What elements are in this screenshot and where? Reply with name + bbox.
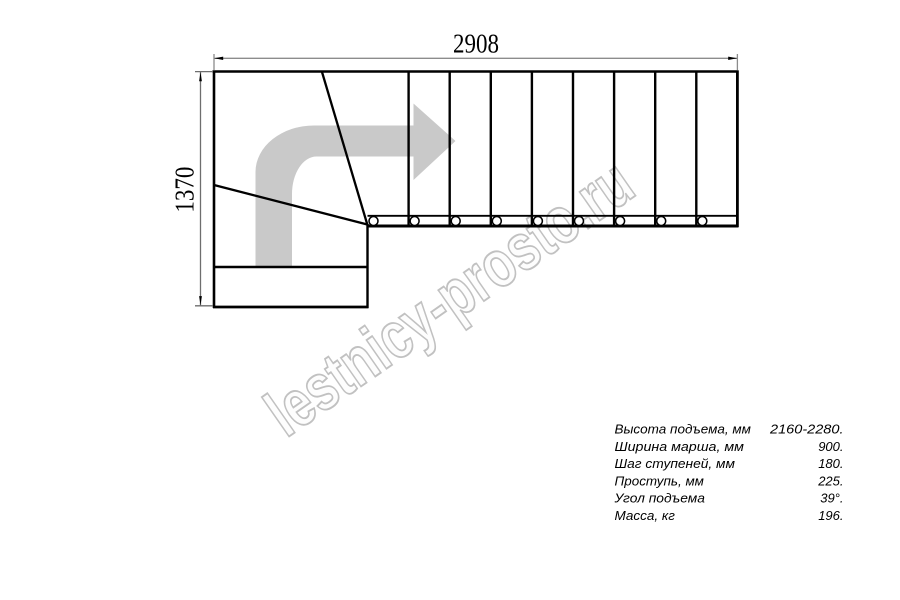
svg-text:1370: 1370 bbox=[169, 167, 199, 213]
svg-text:2160-2280.: 2160-2280. bbox=[769, 422, 844, 437]
svg-text:Шаг ступеней, мм: Шаг ступеней, мм bbox=[615, 456, 735, 471]
svg-text:225.: 225. bbox=[817, 473, 843, 488]
svg-text:Высота подъема, мм: Высота подъема, мм bbox=[615, 422, 751, 437]
svg-text:Ширина марша, мм: Ширина марша, мм bbox=[615, 439, 744, 454]
svg-text:Масса, кг: Масса, кг bbox=[615, 508, 676, 523]
svg-text:Угол подъема: Угол подъема bbox=[613, 491, 704, 506]
svg-text:196.: 196. bbox=[818, 508, 843, 523]
svg-text:2908: 2908 bbox=[453, 29, 499, 59]
svg-text:900.: 900. bbox=[818, 439, 843, 454]
svg-text:39°.: 39°. bbox=[820, 491, 843, 506]
svg-text:180.: 180. bbox=[818, 456, 843, 471]
svg-text:Проступь, мм: Проступь, мм bbox=[615, 473, 704, 488]
